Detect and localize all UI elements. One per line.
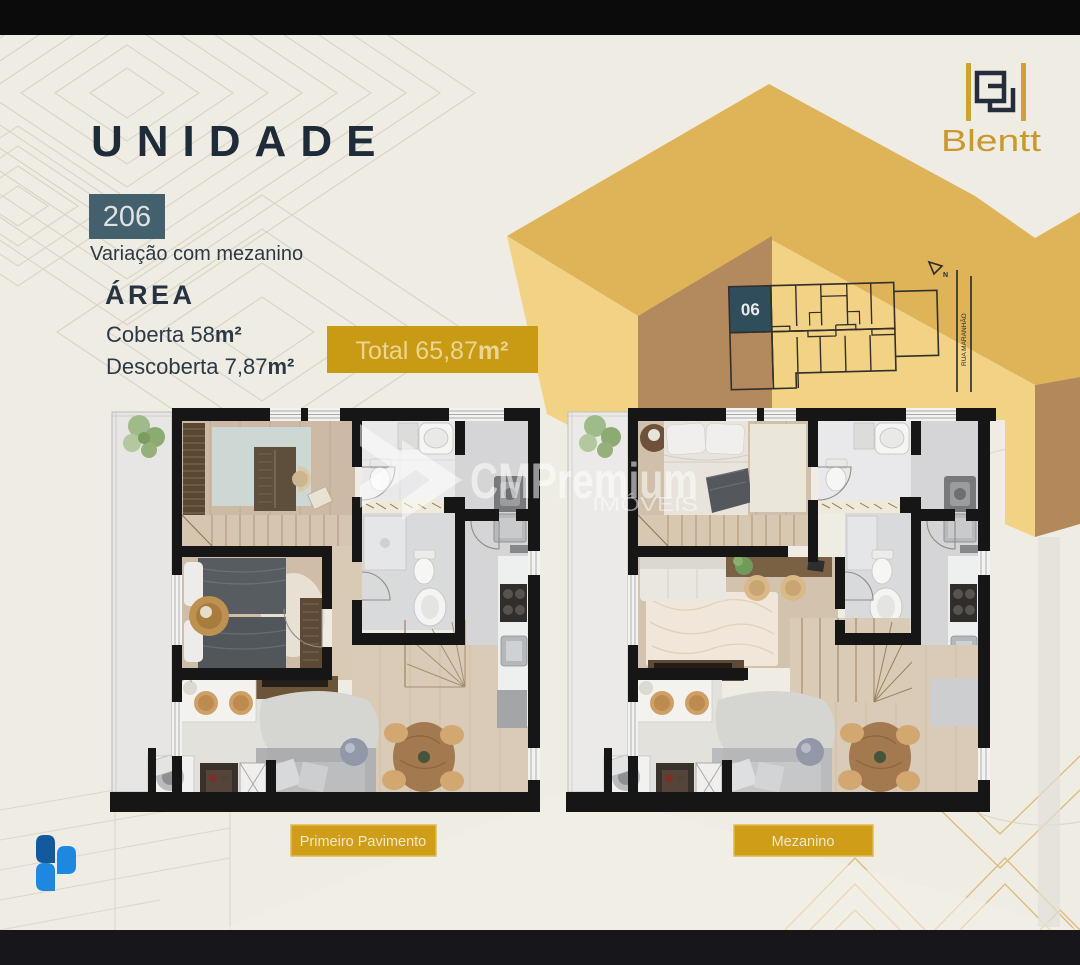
- svg-text:06: 06: [741, 300, 760, 319]
- svg-text:Primeiro Pavimento: Primeiro Pavimento: [300, 834, 427, 850]
- svg-text:Descoberta 7,87m²: Descoberta 7,87m²: [106, 354, 294, 379]
- svg-text:Total 65,87m²: Total 65,87m²: [356, 337, 509, 365]
- svg-text:RUA MARANHÃO: RUA MARANHÃO: [959, 313, 968, 366]
- svg-text:ÁREA: ÁREA: [105, 279, 196, 310]
- svg-text:Coberta 58m²: Coberta 58m²: [106, 322, 242, 347]
- svg-text:Mezanino: Mezanino: [772, 834, 835, 850]
- svg-text:Blentt: Blentt: [941, 123, 1041, 158]
- svg-text:IMÓVEIS: IMÓVEIS: [592, 493, 698, 516]
- svg-text:UNIDADE: UNIDADE: [91, 117, 389, 166]
- svg-text:N: N: [943, 272, 948, 279]
- svg-text:Variação com mezanino: Variação com mezanino: [90, 243, 303, 265]
- svg-text:206: 206: [103, 201, 151, 233]
